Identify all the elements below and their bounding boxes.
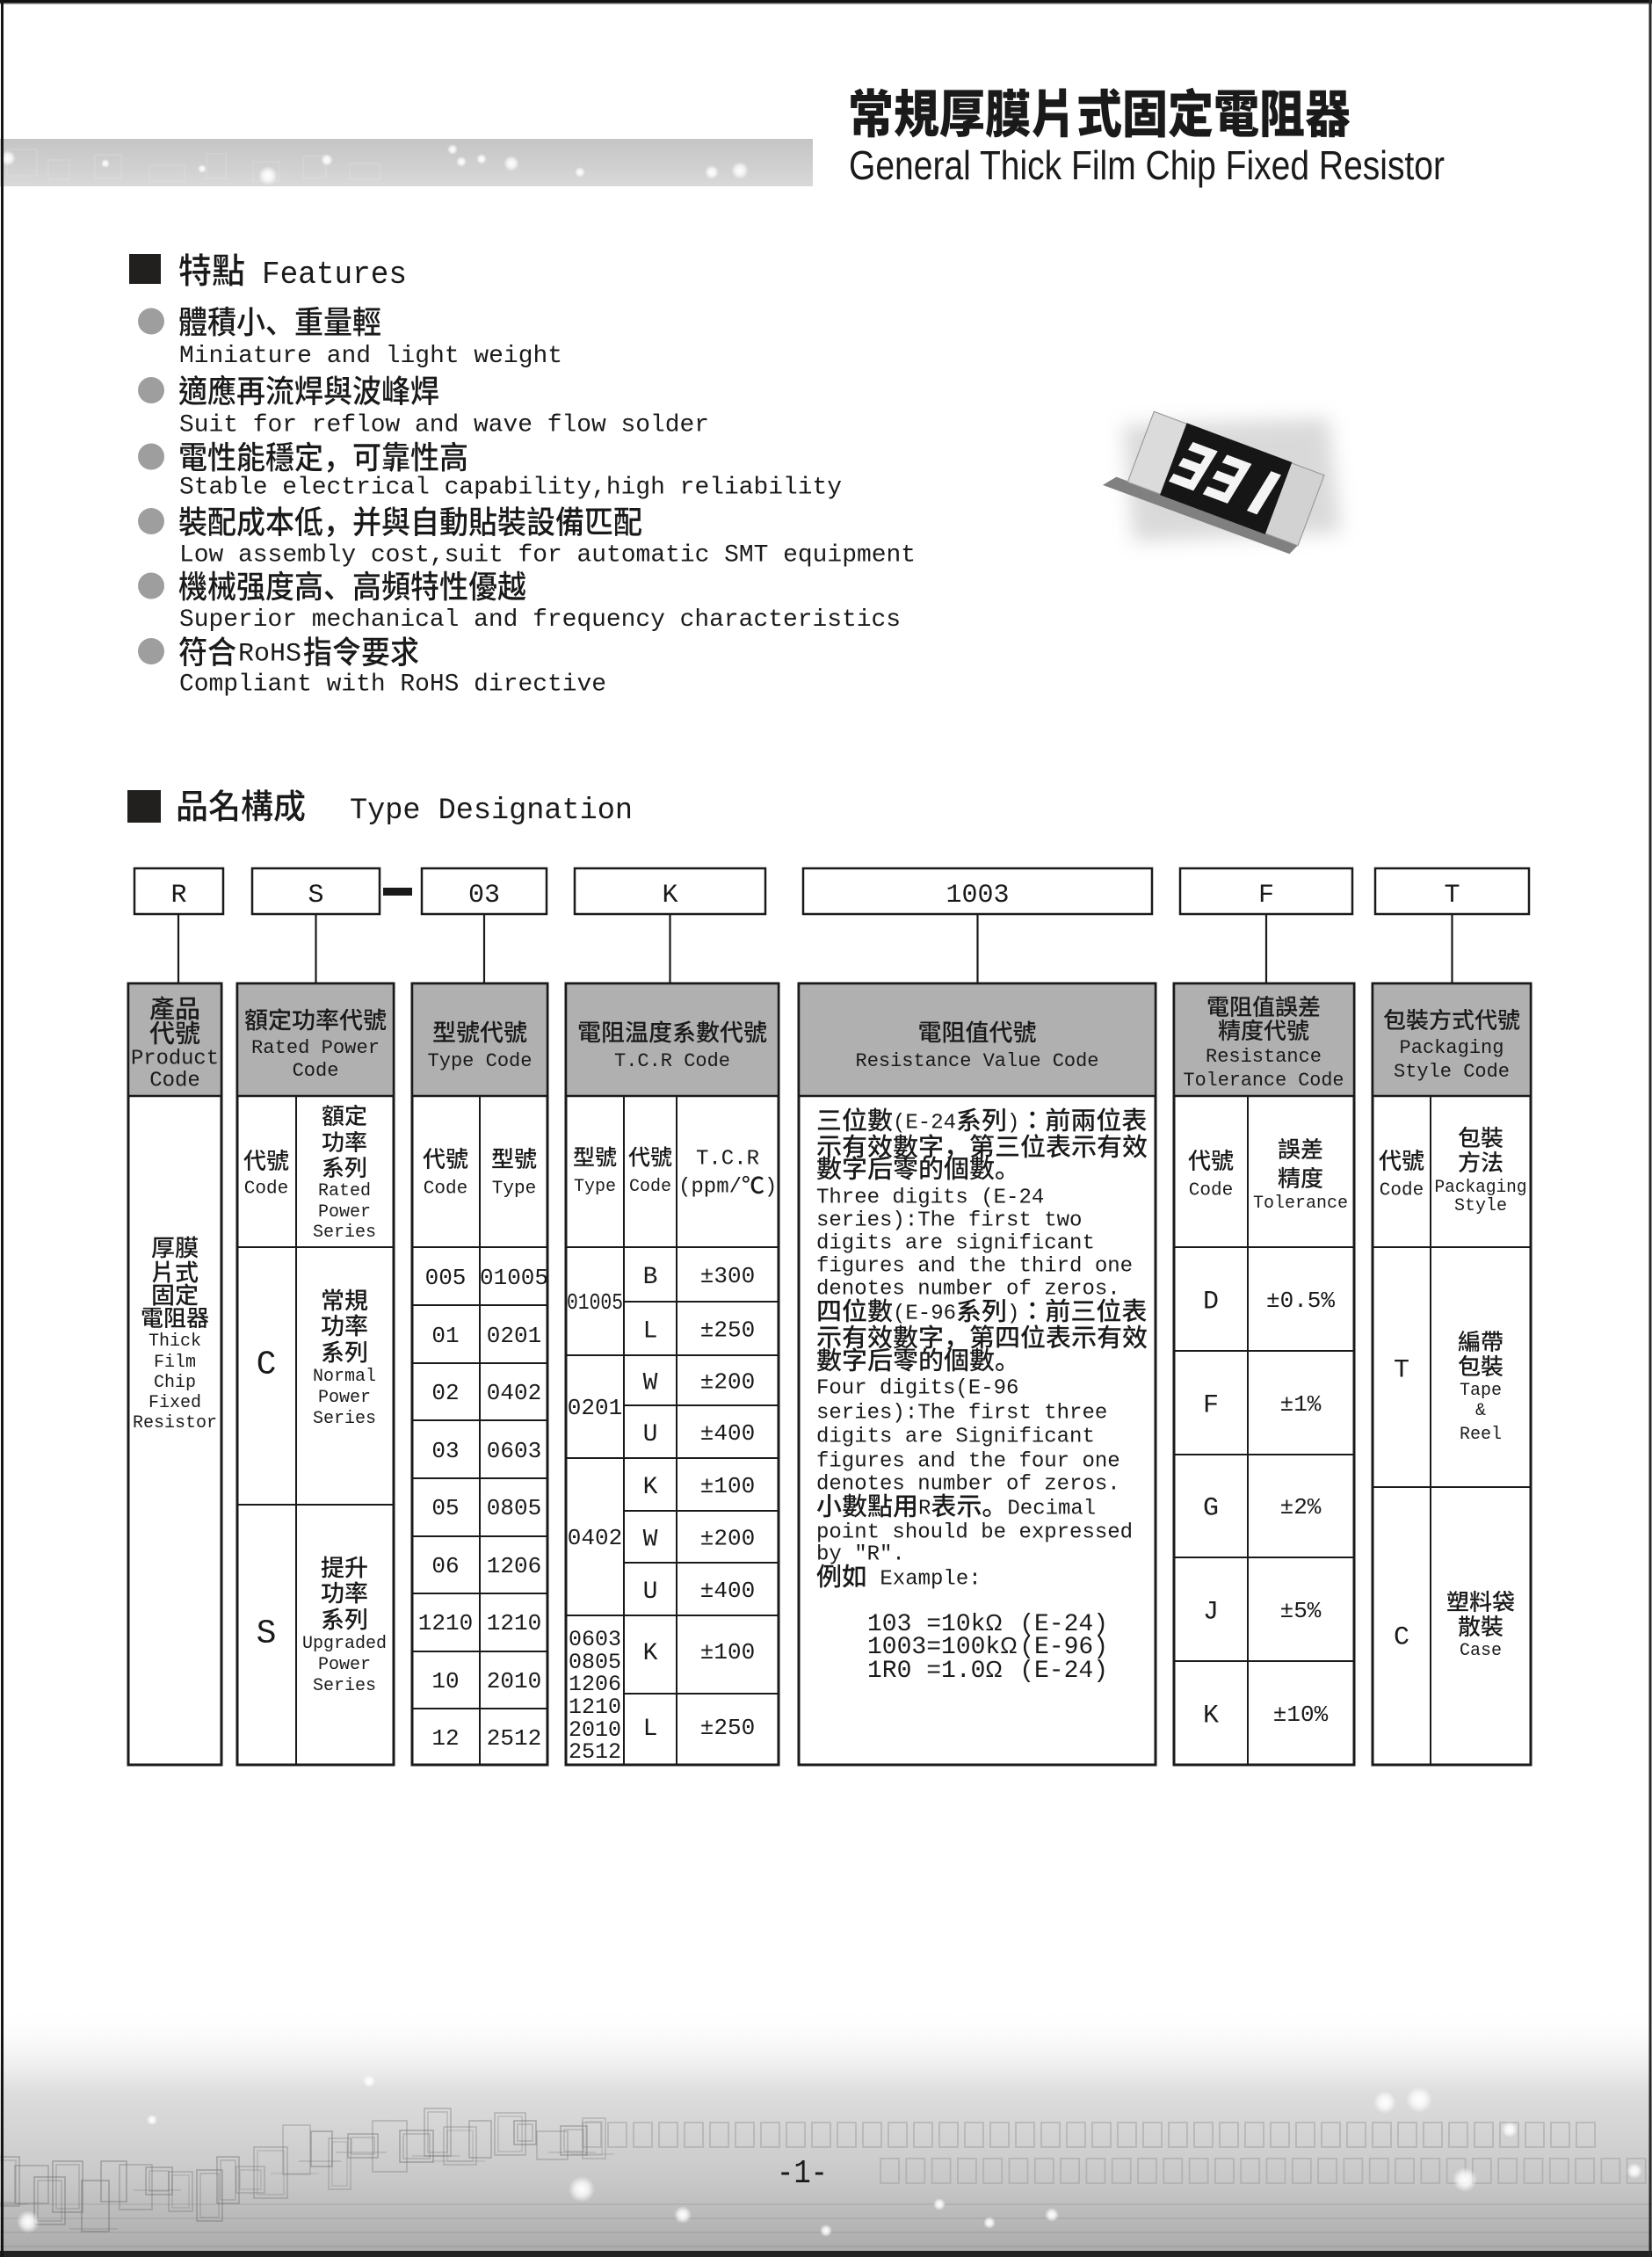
svg-text:Style: Style (1454, 1196, 1507, 1216)
svg-text:Code: Code (149, 1070, 200, 1093)
svg-text:Ω: Ω (985, 1656, 1002, 1682)
svg-text:Four digits(E-96: Four digits(E-96 (816, 1377, 1018, 1401)
svg-text:Resistance Value Code: Resistance Value Code (856, 1050, 1099, 1072)
svg-text:Type Code: Type Code (428, 1050, 533, 1072)
svg-text:General Thick Film Chip Fixed: General Thick Film Chip Fixed Resistor (849, 142, 1445, 188)
svg-text:Packaging: Packaging (1400, 1037, 1504, 1059)
svg-text:U: U (643, 1578, 658, 1606)
svg-text:(E-96: (E-96 (893, 1303, 956, 1326)
svg-text:(E-24: (E-24 (893, 1112, 956, 1136)
svg-text:Code: Code (424, 1179, 467, 1200)
svg-text:R: R (170, 881, 186, 911)
svg-text:±200: ±200 (700, 1369, 755, 1396)
svg-text:Features: Features (262, 257, 407, 293)
svg-text:Stable electrical capability,h: Stable electrical capability,high reliab… (179, 475, 842, 502)
svg-text:±2%: ±2% (1280, 1494, 1322, 1520)
svg-text:by "R".: by "R". (816, 1543, 905, 1567)
svg-text:±10%: ±10% (1273, 1702, 1329, 1728)
svg-text:-1-: -1- (777, 2155, 828, 2193)
svg-text:B: B (643, 1264, 658, 1291)
svg-text:D: D (1203, 1288, 1219, 1317)
svg-text:Film: Film (154, 1353, 196, 1373)
svg-text:K: K (662, 881, 677, 911)
svg-text:02: 02 (431, 1380, 459, 1406)
svg-text:±100: ±100 (700, 1473, 755, 1499)
svg-text:±200: ±200 (700, 1526, 755, 1552)
svg-text:1210: 1210 (569, 1695, 621, 1720)
svg-text:01005: 01005 (480, 1265, 548, 1291)
svg-text:Decimal: Decimal (1007, 1498, 1096, 1521)
svg-text:denotes number of zeros.: denotes number of zeros. (816, 1278, 1120, 1302)
svg-text:Rated Power: Rated Power (251, 1037, 380, 1059)
svg-text:03: 03 (431, 1438, 459, 1464)
svg-text:1210: 1210 (487, 1610, 541, 1637)
svg-text:denotes number of zeros.: denotes number of zeros. (816, 1473, 1120, 1497)
svg-text:±250: ±250 (700, 1317, 755, 1344)
svg-text:2010: 2010 (487, 1668, 541, 1695)
svg-text:Resistor: Resistor (133, 1413, 217, 1433)
svg-text:point should be expressed: point should be expressed (816, 1521, 1133, 1545)
svg-text:2512: 2512 (487, 1725, 541, 1752)
svg-text:digits are Significant: digits are Significant (816, 1426, 1095, 1449)
svg-text:Low assembly cost,suit for aut: Low assembly cost,suit for automatic SMT… (179, 542, 916, 570)
svg-text:Type: Type (492, 1179, 536, 1200)
svg-text:Miniature and light weight: Miniature and light weight (179, 343, 562, 370)
svg-text:G: G (1203, 1494, 1219, 1524)
svg-text:Resistance: Resistance (1206, 1046, 1322, 1068)
svg-text:Type: Type (574, 1177, 616, 1197)
svg-text:Chip: Chip (154, 1373, 196, 1393)
svg-text:1003: 1003 (946, 881, 1009, 911)
svg-text:01: 01 (431, 1323, 459, 1349)
svg-text:C: C (257, 1346, 277, 1384)
svg-text:K: K (1203, 1702, 1219, 1731)
svg-text:Product: Product (131, 1048, 219, 1071)
svg-text:&: & (1475, 1401, 1486, 1421)
svg-text:F: F (1258, 881, 1274, 911)
svg-text:R: R (918, 1498, 931, 1521)
svg-text:Ω: Ω (1000, 1632, 1017, 1658)
svg-text:RoHS: RoHS (238, 640, 301, 670)
svg-text:0603: 0603 (569, 1627, 621, 1652)
svg-text:±300: ±300 (700, 1263, 755, 1289)
svg-text:1206: 1206 (487, 1553, 541, 1579)
svg-text:±250: ±250 (700, 1715, 755, 1741)
svg-text:): ) (1007, 1112, 1019, 1136)
svg-text:Tolerance Code: Tolerance Code (1184, 1070, 1344, 1092)
svg-text:Fixed: Fixed (149, 1393, 201, 1413)
svg-text:Superior mechanical and freque: Superior mechanical and frequency charac… (179, 606, 901, 634)
svg-text:Thick: Thick (149, 1332, 201, 1352)
svg-text:±5%: ±5% (1280, 1598, 1322, 1624)
svg-text:K: K (643, 1640, 658, 1667)
svg-text:T: T (1444, 881, 1460, 911)
svg-text:Power: Power (318, 1655, 371, 1675)
svg-text:U: U (643, 1421, 658, 1448)
svg-text:10: 10 (431, 1668, 459, 1695)
svg-text:±1%: ±1% (1280, 1391, 1322, 1418)
svg-text:Series: Series (313, 1223, 376, 1243)
svg-text:Rated: Rated (318, 1181, 371, 1201)
svg-text:Power: Power (318, 1388, 371, 1408)
svg-text:Style Code: Style Code (1394, 1061, 1510, 1083)
svg-text:S: S (257, 1615, 277, 1653)
svg-text:): ) (1007, 1303, 1019, 1326)
svg-text:T.C.R: T.C.R (696, 1148, 759, 1172)
svg-text:005: 005 (425, 1265, 467, 1291)
svg-text:digits are significant: digits are significant (816, 1232, 1095, 1256)
svg-text:Compliant with RoHS directive: Compliant with RoHS directive (179, 671, 606, 699)
svg-text:1210: 1210 (418, 1610, 473, 1637)
svg-text:Code: Code (629, 1177, 671, 1197)
svg-text:L: L (643, 1317, 658, 1345)
svg-text:series):The first two: series):The first two (816, 1209, 1082, 1233)
svg-text:Tape: Tape (1460, 1381, 1502, 1401)
svg-text:03: 03 (468, 881, 500, 911)
svg-text:Normal: Normal (313, 1367, 376, 1387)
svg-text:Case: Case (1460, 1641, 1502, 1661)
svg-text:Series: Series (313, 1409, 376, 1429)
svg-text:06: 06 (431, 1553, 459, 1579)
svg-text:S: S (308, 881, 323, 911)
svg-text:J: J (1203, 1598, 1219, 1628)
svg-text:Reel: Reel (1460, 1425, 1502, 1445)
svg-text:1206: 1206 (569, 1672, 621, 1697)
svg-text:Power: Power (318, 1202, 371, 1223)
svg-text:series):The first three: series):The first three (816, 1402, 1107, 1426)
svg-text:Upgraded: Upgraded (302, 1634, 387, 1654)
svg-text:±0.5%: ±0.5% (1266, 1288, 1335, 1314)
svg-text:(E-24): (E-24) (1004, 1658, 1108, 1685)
svg-text:±100: ±100 (700, 1639, 755, 1666)
svg-text:2512: 2512 (569, 1739, 621, 1765)
svg-text:T: T (1394, 1356, 1409, 1386)
svg-text:0603: 0603 (487, 1438, 541, 1464)
svg-text:Series: Series (313, 1676, 376, 1696)
svg-text:Three digits (E-24: Three digits (E-24 (816, 1187, 1044, 1210)
svg-text:Code: Code (1189, 1181, 1233, 1201)
svg-text:Code: Code (293, 1060, 339, 1082)
svg-text:(ppm/: (ppm/ (678, 1176, 742, 1200)
svg-text:Packaging: Packaging (1435, 1178, 1527, 1198)
svg-text:0805: 0805 (487, 1495, 541, 1521)
svg-text:T.C.R Code: T.C.R Code (614, 1050, 730, 1072)
svg-text:W: W (643, 1369, 658, 1397)
svg-text:0402: 0402 (568, 1525, 622, 1551)
svg-text:F: F (1203, 1391, 1219, 1421)
svg-text:Example:: Example: (867, 1568, 982, 1592)
svg-text:figures and the four one: figures and the four one (816, 1450, 1120, 1474)
svg-text:): ) (764, 1176, 777, 1200)
svg-text:K: K (643, 1474, 658, 1501)
svg-text:W: W (643, 1526, 658, 1553)
svg-text:Suit for reflow and wave flow: Suit for reflow and wave flow solder (179, 412, 709, 439)
svg-text:±400: ±400 (700, 1578, 755, 1604)
svg-text:C: C (1394, 1623, 1409, 1653)
svg-text:01005: 01005 (567, 1289, 623, 1316)
svg-text:0402: 0402 (487, 1380, 541, 1406)
svg-text:Type Designation: Type Designation (350, 795, 633, 828)
svg-text:±400: ±400 (700, 1420, 755, 1447)
svg-text:05: 05 (431, 1495, 459, 1521)
svg-text:Tolerance: Tolerance (1253, 1194, 1348, 1214)
svg-text:Code: Code (244, 1179, 288, 1200)
svg-text:figures and the third one: figures and the third one (816, 1255, 1133, 1279)
svg-text:0201: 0201 (487, 1323, 541, 1349)
svg-text:L: L (643, 1716, 658, 1743)
svg-text:1R0 =1.0: 1R0 =1.0 (867, 1658, 985, 1685)
svg-text:Code: Code (1380, 1181, 1424, 1201)
svg-text:0201: 0201 (568, 1395, 622, 1421)
svg-text:12: 12 (431, 1725, 459, 1752)
